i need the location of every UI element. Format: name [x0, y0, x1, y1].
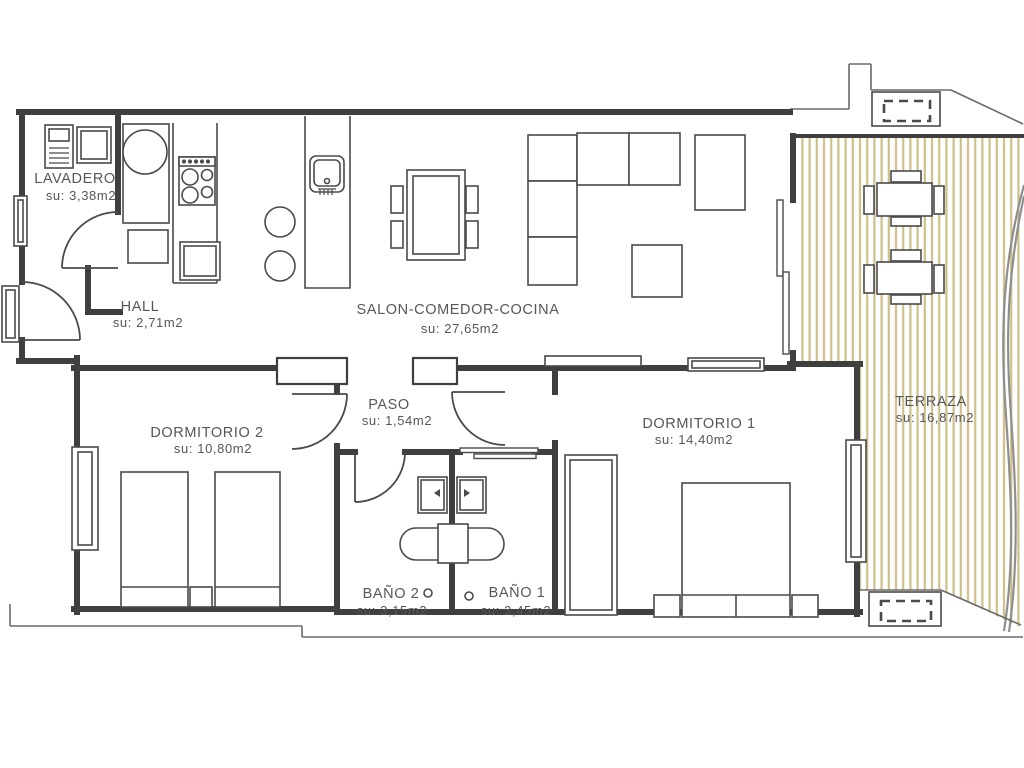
wardrobe: [565, 455, 617, 615]
entrance-sidelight: [2, 286, 19, 342]
toilet-marker: [424, 589, 432, 597]
room-area-paso: su: 1,54m2: [362, 413, 432, 428]
terrace-table: [877, 183, 932, 216]
dining-chair: [391, 186, 403, 213]
dormitorio1-door: [452, 392, 505, 445]
room-area-salon: su: 27,65m2: [421, 321, 499, 336]
dormitorio2-door: [292, 394, 347, 449]
dormitorio2-furniture: [121, 472, 280, 607]
entrance-door: [22, 282, 80, 340]
single-bed: [121, 472, 188, 607]
paso-wall-blocks: [277, 358, 457, 384]
terrace-chair: [934, 265, 944, 293]
tv-bench: [545, 356, 641, 366]
kitchen-tall-unit: [123, 124, 169, 223]
ac-unit-top: [872, 92, 940, 126]
room-label-bano2: BAÑO 2: [363, 585, 420, 602]
stove: [179, 157, 215, 205]
lavadero-window: [14, 196, 27, 246]
dining-chair: [466, 186, 478, 213]
bano2-door: [355, 452, 405, 502]
terrace-chair: [891, 295, 921, 304]
dining-chair: [391, 221, 403, 248]
ac-unit-bottom: [869, 592, 941, 626]
double-bed: [682, 483, 790, 617]
nightstand: [792, 595, 818, 617]
room-area-bano1: su: 3,45m2: [481, 603, 551, 618]
lavadero-door: [62, 212, 118, 268]
bano1-sink: [457, 477, 486, 513]
dormitorio2-window: [72, 447, 98, 550]
terrace-chair: [864, 186, 874, 214]
room-label-dormitorio1: DORMITORIO 1: [642, 416, 755, 432]
salon-sideboard: [688, 358, 764, 371]
room-area-terraza: su: 16,87m2: [896, 410, 974, 425]
terrace-chair: [891, 250, 921, 261]
room-label-hall: HALL: [121, 299, 160, 315]
bar-stool: [265, 207, 295, 237]
armchair: [695, 135, 745, 210]
terrace-chair: [864, 265, 874, 293]
kitchen-cabinet-b: [180, 242, 220, 280]
room-area-bano2: su: 3,15m2: [357, 603, 427, 618]
room-label-terraza: TERRAZA: [895, 394, 967, 410]
room-area-dormitorio1: su: 14,40m2: [655, 432, 733, 447]
bathtub-center: [438, 524, 468, 563]
nightstand: [654, 595, 680, 617]
room-area-lavadero: su: 3,38m2: [46, 188, 116, 203]
floor-plan: LAVADERO su: 3,38m2 HALL su: 2,71m2 SALO…: [0, 0, 1024, 768]
dining-table: [407, 170, 465, 260]
terrace-chair: [891, 217, 921, 226]
laundry-counter: [77, 127, 111, 163]
toilet-marker: [465, 592, 473, 600]
room-area-hall: su: 2,71m2: [113, 315, 183, 330]
washing-machine: [45, 125, 73, 168]
terrace-table: [877, 262, 932, 294]
single-bed: [215, 472, 280, 607]
bano1-sliding-door: [460, 448, 538, 459]
room-label-bano1: BAÑO 1: [489, 584, 546, 601]
room-area-dormitorio2: su: 10,80m2: [174, 441, 252, 456]
room-label-salon: SALON-COMEDOR-COCINA: [357, 302, 560, 318]
room-label-dormitorio2: DORMITORIO 2: [150, 425, 263, 441]
dormitorio1-window: [846, 440, 866, 562]
floor-plan-drawing: LAVADERO su: 3,38m2 HALL su: 2,71m2 SALO…: [0, 0, 1024, 768]
kitchen-cabinet-a: [128, 230, 168, 263]
nightstand: [190, 587, 212, 607]
kitchen-sink: [310, 156, 344, 195]
room-label-paso: PASO: [368, 397, 410, 413]
room-label-lavadero: LAVADERO: [34, 171, 116, 187]
terrace-chair: [934, 186, 944, 214]
dormitorio1-furniture: [565, 455, 818, 617]
dining-chair: [466, 221, 478, 248]
bar-stool: [265, 251, 295, 281]
side-table: [632, 245, 682, 297]
terrace-chair: [891, 171, 921, 182]
terrace-sliding-door: [777, 200, 789, 354]
bano2-sink: [418, 477, 447, 513]
kitchen-peninsula: [305, 116, 350, 288]
